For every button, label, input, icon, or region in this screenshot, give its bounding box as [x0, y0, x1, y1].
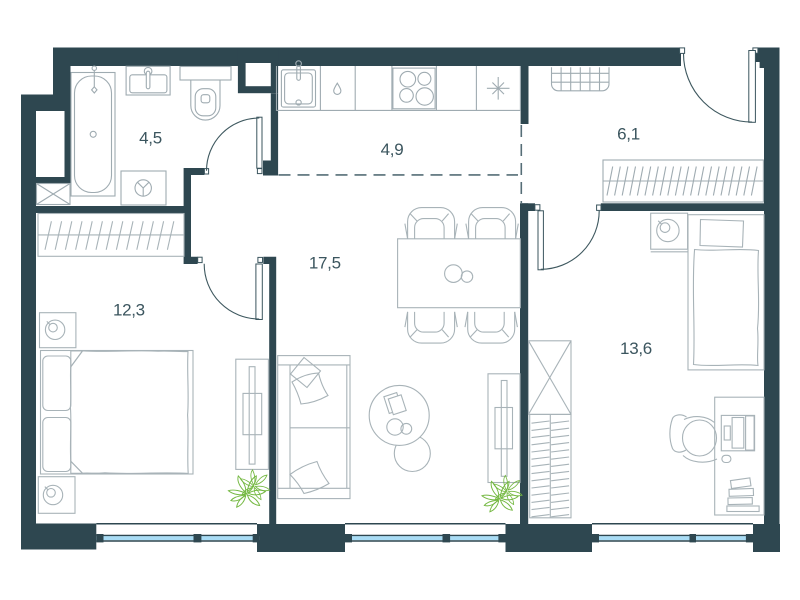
svg-text:4,5: 4,5: [139, 129, 162, 148]
svg-text:6,1: 6,1: [617, 125, 640, 144]
svg-text:13,6: 13,6: [620, 339, 652, 358]
svg-text:4,9: 4,9: [381, 140, 404, 159]
svg-text:17,5: 17,5: [309, 254, 341, 273]
svg-text:12,3: 12,3: [113, 301, 145, 320]
